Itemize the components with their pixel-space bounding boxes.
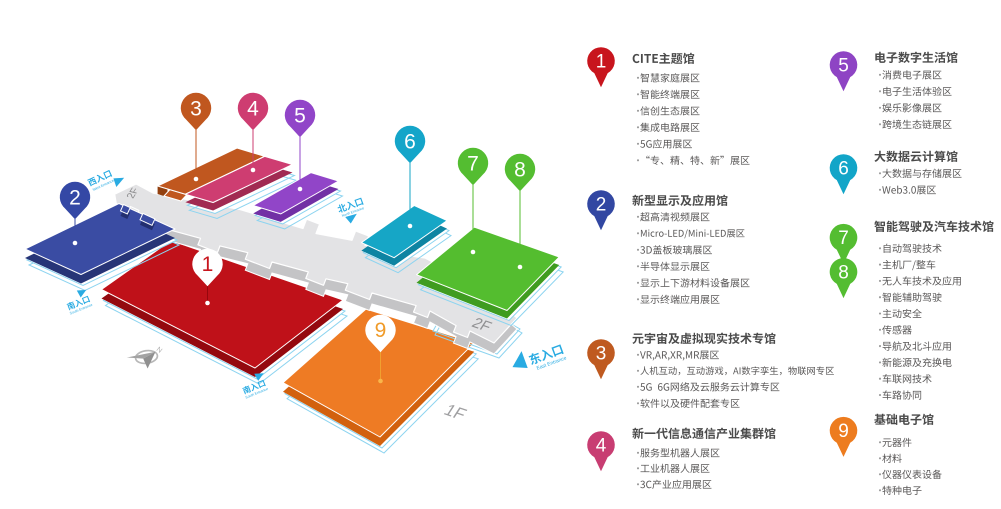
svg-text:3: 3 (190, 97, 202, 120)
svg-text:1: 1 (202, 253, 214, 276)
svg-text:South Entrance: South Entrance (245, 387, 269, 400)
svg-text:2: 2 (69, 186, 81, 209)
svg-text:South Entrance: South Entrance (69, 303, 93, 316)
svg-text:5: 5 (294, 104, 306, 127)
svg-text:9: 9 (838, 421, 849, 442)
svg-text:9: 9 (375, 319, 387, 342)
svg-text:3: 3 (596, 344, 607, 365)
svg-text:6: 6 (404, 130, 416, 153)
svg-text:5: 5 (838, 56, 849, 77)
svg-text:8: 8 (514, 158, 526, 181)
svg-text:8: 8 (838, 262, 849, 283)
svg-text:1F: 1F (440, 400, 470, 423)
svg-text:1: 1 (596, 52, 607, 73)
svg-text:2: 2 (596, 195, 607, 216)
svg-text:7: 7 (467, 152, 479, 175)
svg-text:6: 6 (838, 159, 849, 180)
svg-text:7: 7 (838, 228, 849, 249)
svg-text:4: 4 (247, 97, 259, 120)
svg-text:4: 4 (596, 436, 607, 457)
svg-text:East Entrance: East Entrance (536, 355, 568, 371)
